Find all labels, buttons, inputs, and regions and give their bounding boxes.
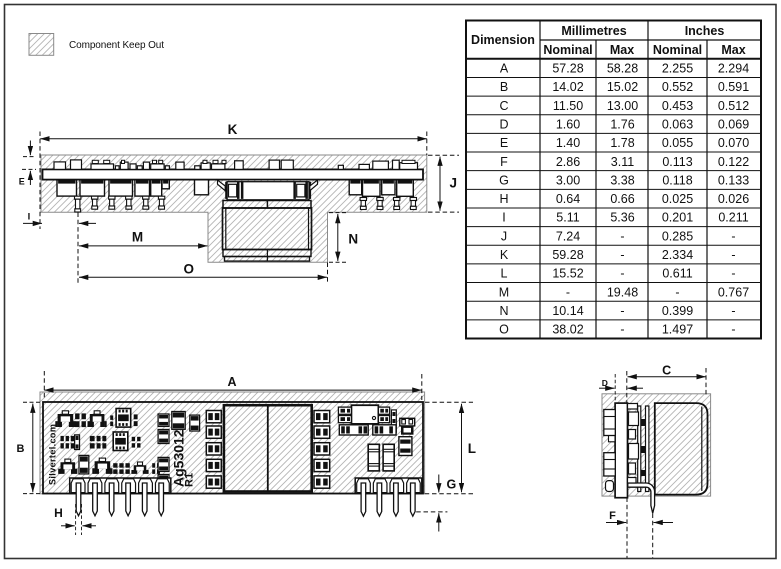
svg-text:H: H — [54, 506, 63, 520]
svg-text:0.767: 0.767 — [718, 285, 749, 299]
svg-text:0.64: 0.64 — [556, 192, 580, 206]
svg-text:57.28: 57.28 — [552, 62, 583, 76]
svg-text:-: - — [731, 323, 735, 337]
svg-text:0.122: 0.122 — [718, 155, 749, 169]
svg-text:E: E — [19, 176, 25, 186]
svg-text:O: O — [499, 323, 509, 337]
svg-text:I: I — [502, 211, 505, 225]
svg-text:-: - — [620, 323, 624, 337]
svg-text:0.512: 0.512 — [718, 99, 749, 113]
svg-text:0.055: 0.055 — [662, 136, 693, 150]
svg-text:C: C — [499, 99, 508, 113]
svg-text:1.497: 1.497 — [662, 323, 693, 337]
svg-text:0.201: 0.201 — [662, 211, 693, 225]
svg-text:-: - — [620, 248, 624, 262]
svg-text:B: B — [500, 80, 508, 94]
svg-text:-: - — [731, 229, 735, 243]
svg-text:0.285: 0.285 — [662, 229, 693, 243]
svg-text:Millimetres: Millimetres — [561, 24, 626, 38]
svg-text:3.11: 3.11 — [611, 155, 634, 169]
svg-text:G: G — [499, 173, 509, 187]
svg-text:Max: Max — [721, 43, 745, 57]
svg-text:2.294: 2.294 — [718, 62, 749, 76]
svg-text:0.069: 0.069 — [718, 117, 749, 131]
svg-text:Dimension: Dimension — [471, 33, 535, 47]
svg-text:15.02: 15.02 — [607, 80, 638, 94]
svg-text:1.60: 1.60 — [556, 117, 580, 131]
svg-text:K: K — [228, 122, 238, 137]
svg-text:-: - — [731, 267, 735, 281]
svg-text:M: M — [132, 230, 143, 245]
svg-text:Silvertel.com: Silvertel.com — [48, 424, 58, 485]
svg-text:0.211: 0.211 — [718, 211, 748, 225]
svg-text:3.38: 3.38 — [610, 173, 634, 187]
svg-text:D: D — [499, 117, 508, 131]
svg-text:7.24: 7.24 — [556, 229, 580, 243]
svg-text:2.255: 2.255 — [662, 62, 693, 76]
svg-text:H: H — [499, 192, 508, 206]
svg-text:3.00: 3.00 — [556, 173, 580, 187]
svg-text:38.02: 38.02 — [552, 323, 583, 337]
svg-text:Inches: Inches — [685, 24, 725, 38]
svg-text:19.48: 19.48 — [607, 285, 638, 299]
svg-text:J: J — [450, 176, 458, 191]
svg-text:Nominal: Nominal — [543, 43, 592, 57]
svg-text:R1: R1 — [184, 473, 196, 487]
svg-text:0.070: 0.070 — [718, 136, 749, 150]
svg-text:-: - — [620, 267, 624, 281]
svg-text:-: - — [731, 248, 735, 262]
svg-text:C: C — [662, 363, 671, 377]
svg-text:2.86: 2.86 — [556, 155, 580, 169]
svg-text:Max: Max — [610, 43, 634, 57]
svg-text:0.453: 0.453 — [662, 99, 693, 113]
svg-text:I: I — [28, 212, 31, 223]
svg-text:B: B — [17, 443, 25, 455]
svg-text:0.611: 0.611 — [662, 267, 692, 281]
svg-text:N: N — [348, 232, 358, 247]
svg-text:11.50: 11.50 — [553, 99, 583, 113]
svg-text:Component Keep Out: Component Keep Out — [69, 40, 164, 51]
svg-text:-: - — [731, 304, 735, 318]
svg-text:13.00: 13.00 — [607, 99, 638, 113]
svg-text:15.52: 15.52 — [552, 267, 583, 281]
svg-text:0.063: 0.063 — [662, 117, 693, 131]
svg-text:2.334: 2.334 — [662, 248, 693, 262]
svg-text:0.113: 0.113 — [662, 155, 692, 169]
svg-text:K: K — [500, 248, 509, 262]
svg-text:5.11: 5.11 — [556, 211, 579, 225]
svg-text:-: - — [620, 229, 624, 243]
svg-text:0.026: 0.026 — [718, 192, 749, 206]
svg-text:0.66: 0.66 — [610, 192, 634, 206]
svg-text:-: - — [566, 285, 570, 299]
svg-text:A: A — [227, 375, 236, 389]
svg-text:1.40: 1.40 — [556, 136, 580, 150]
svg-text:Nominal: Nominal — [653, 43, 702, 57]
svg-text:0.118: 0.118 — [662, 173, 692, 187]
svg-text:M: M — [499, 285, 509, 299]
svg-text:58.28: 58.28 — [607, 62, 638, 76]
svg-text:0.133: 0.133 — [718, 173, 749, 187]
svg-text:O: O — [184, 262, 195, 277]
svg-text:D: D — [602, 378, 608, 388]
svg-text:L: L — [501, 267, 508, 281]
svg-text:J: J — [501, 229, 507, 243]
svg-text:A: A — [500, 62, 509, 76]
svg-text:1.78: 1.78 — [610, 136, 634, 150]
svg-text:14.02: 14.02 — [552, 80, 583, 94]
svg-text:F: F — [500, 155, 508, 169]
svg-text:F: F — [609, 510, 616, 522]
svg-text:0.552: 0.552 — [662, 80, 693, 94]
svg-text:0.591: 0.591 — [718, 80, 749, 94]
svg-text:5.36: 5.36 — [610, 211, 634, 225]
svg-text:0.399: 0.399 — [662, 304, 693, 318]
svg-text:N: N — [499, 304, 508, 318]
svg-text:10.14: 10.14 — [552, 304, 583, 318]
svg-text:-: - — [675, 285, 679, 299]
svg-text:0.025: 0.025 — [662, 192, 693, 206]
svg-text:L: L — [468, 441, 476, 456]
svg-text:-: - — [620, 304, 624, 318]
svg-text:E: E — [500, 136, 508, 150]
svg-text:G: G — [447, 478, 457, 492]
svg-text:59.28: 59.28 — [552, 248, 583, 262]
svg-text:1.76: 1.76 — [610, 117, 634, 131]
